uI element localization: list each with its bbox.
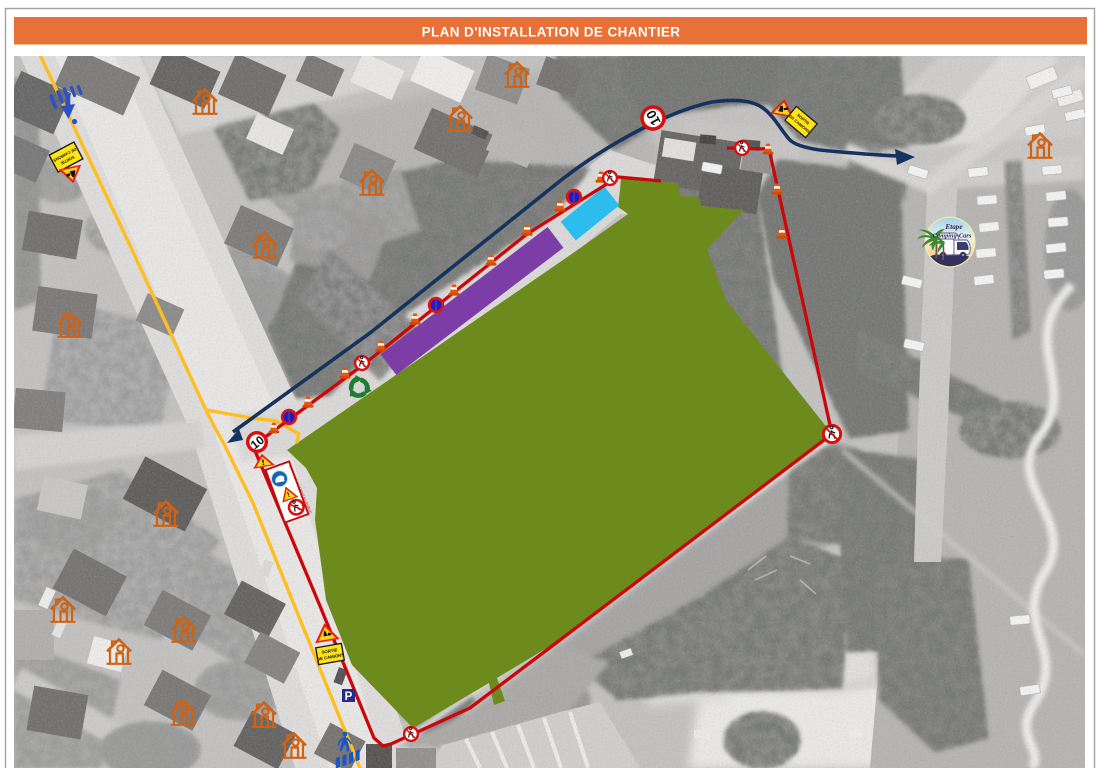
svg-text:P: P — [345, 691, 353, 703]
svg-text:Camping-Cars: Camping-Cars — [933, 233, 972, 240]
svg-text:PLAN D'INSTALLATION DE CHANTIE: PLAN D'INSTALLATION DE CHANTIER — [422, 25, 681, 40]
svg-text:Etape: Etape — [944, 223, 963, 231]
